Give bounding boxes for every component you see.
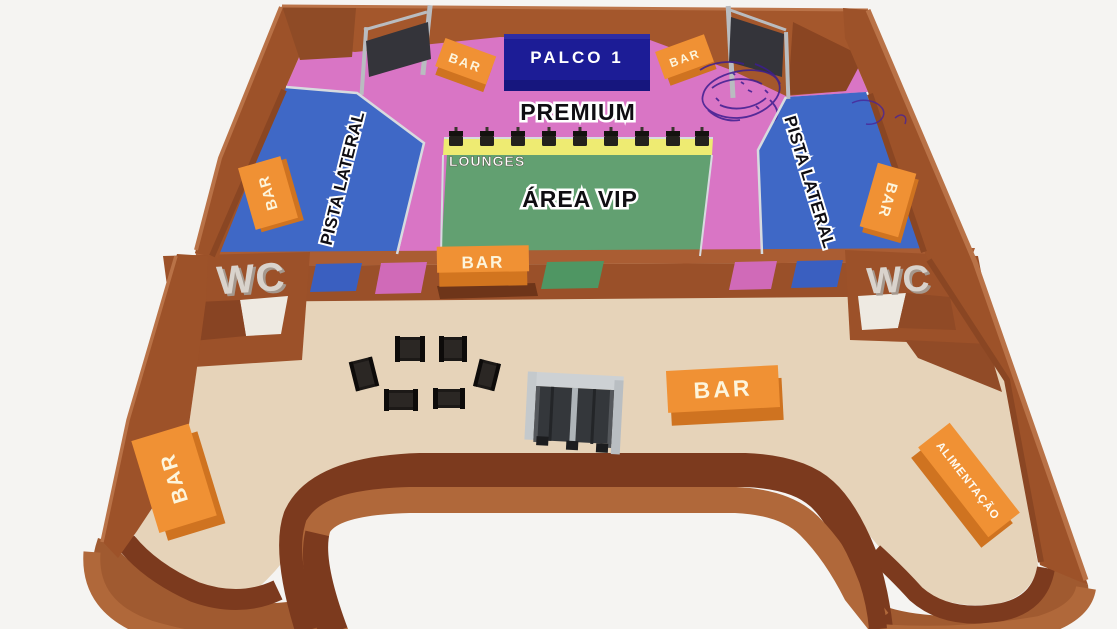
svg-text:BAR: BAR [461, 253, 504, 273]
svg-text:PREMIUM: PREMIUM [520, 99, 636, 125]
svg-text:LOUNGES: LOUNGES [449, 153, 525, 169]
svg-text:PALCO 1: PALCO 1 [530, 48, 623, 67]
svg-text:BAR: BAR [693, 374, 753, 403]
svg-text:ÁREA VIP: ÁREA VIP [522, 185, 638, 212]
svg-text:WC: WC [865, 257, 931, 301]
svg-text:WC: WC [215, 255, 287, 304]
